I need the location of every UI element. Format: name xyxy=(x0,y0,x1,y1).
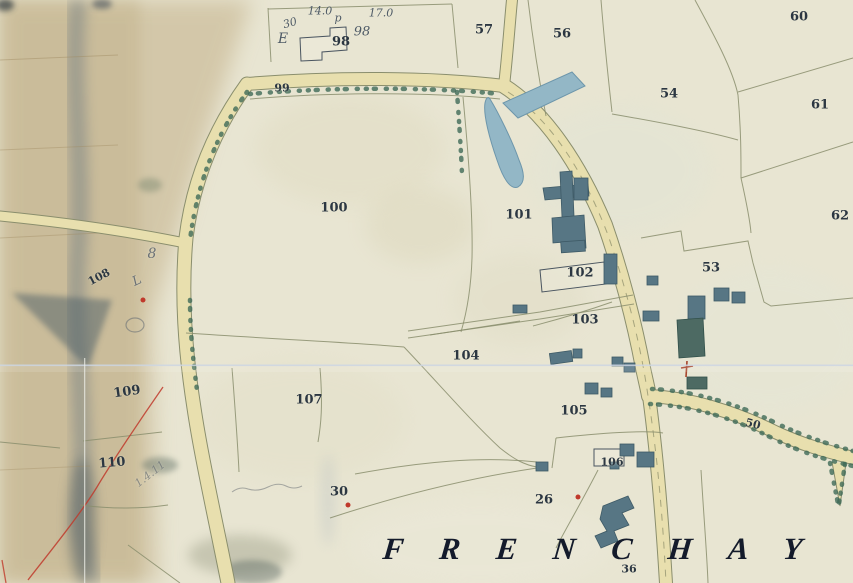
parcel-label-106: 106 xyxy=(601,457,624,468)
annotation-e: E xyxy=(278,32,288,46)
parcel-label-109: 109 xyxy=(113,384,142,401)
pencil-label-8: 8 xyxy=(148,247,157,261)
parcel-label-56: 56 xyxy=(553,28,571,41)
parcel-label-53: 53 xyxy=(702,262,720,275)
parcel-label-61: 61 xyxy=(811,99,829,112)
parcel-label-107: 107 xyxy=(295,394,322,407)
annotation-30: 30 xyxy=(282,16,298,30)
building-large-dark xyxy=(677,318,705,358)
red-dot-2 xyxy=(346,503,351,508)
parcel-label-103: 103 xyxy=(571,314,598,327)
map-canvas: 98 57 56 60 54 61 62 99 100 101 102 53 1… xyxy=(0,0,853,583)
annotation-98: 98 xyxy=(354,26,371,39)
parcel-label-102: 102 xyxy=(566,267,593,280)
annotation-p: p xyxy=(334,13,341,24)
parcel-label-100: 100 xyxy=(320,202,347,215)
parcel-label-30: 30 xyxy=(330,486,348,499)
annotation-17-0: 17.0 xyxy=(369,8,394,19)
parcel-label-62: 62 xyxy=(831,210,849,223)
parcel-label-98: 98 xyxy=(332,36,350,49)
annotation-14-0: 14.0 xyxy=(308,6,333,17)
parcel-label-54: 54 xyxy=(660,88,678,101)
parcel-label-105: 105 xyxy=(560,405,587,418)
parcel-label-101: 101 xyxy=(505,209,532,222)
place-name-frenchay: FRENCHAY xyxy=(381,531,840,567)
parcel-label-60: 60 xyxy=(790,11,808,24)
road-label-50: 50 xyxy=(744,417,762,431)
map-artwork xyxy=(0,0,853,583)
parcel-label-110: 110 xyxy=(98,455,126,470)
red-dot-3 xyxy=(576,495,581,500)
parcel-label-104: 104 xyxy=(452,350,479,363)
parcel-label-57: 57 xyxy=(475,24,493,37)
building-lane xyxy=(536,462,548,471)
parcel-label-26: 26 xyxy=(535,494,553,507)
red-dot-1 xyxy=(141,298,146,303)
parcel-label-99: 99 xyxy=(274,83,289,94)
pencil-scribble xyxy=(232,484,302,492)
